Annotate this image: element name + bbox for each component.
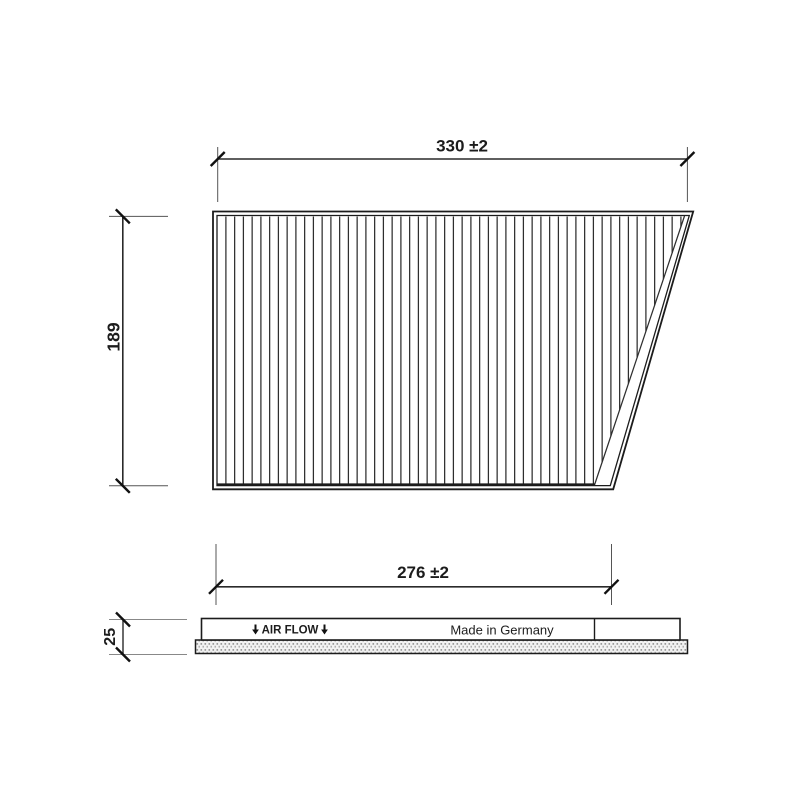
svg-text:189: 189 — [104, 322, 124, 351]
svg-text:330 ±2: 330 ±2 — [436, 137, 488, 156]
svg-text:276 ±2: 276 ±2 — [397, 563, 449, 582]
svg-text:25: 25 — [102, 628, 119, 646]
svg-text:AIR FLOW: AIR FLOW — [262, 625, 319, 637]
svg-text:Made in Germany: Made in Germany — [450, 623, 554, 638]
